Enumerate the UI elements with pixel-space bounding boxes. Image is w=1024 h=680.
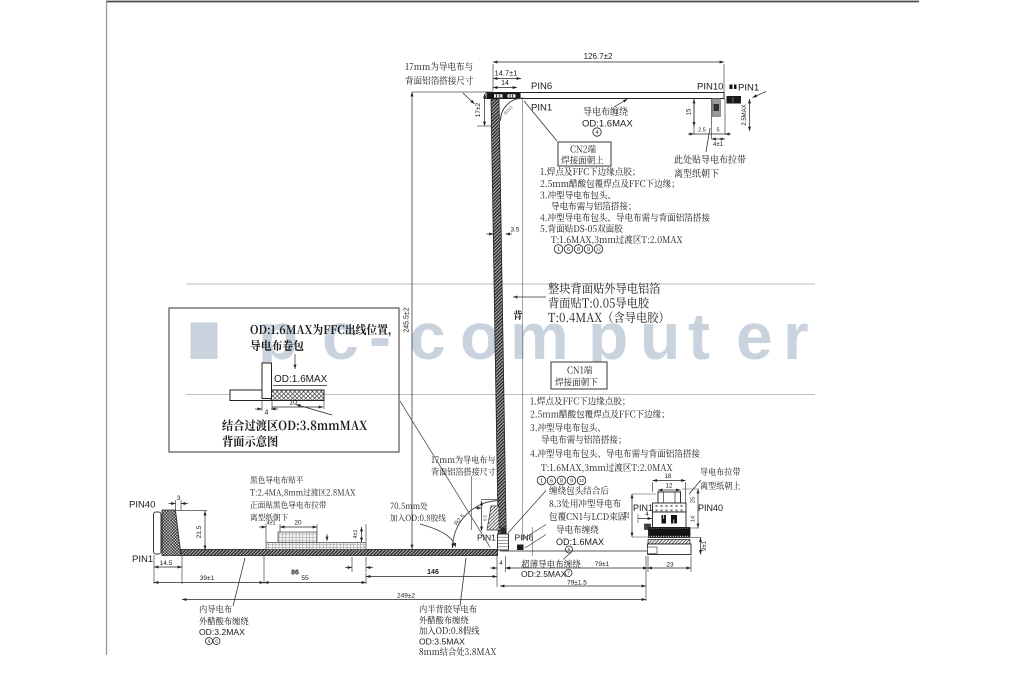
svg-text:25: 25 [691,497,697,503]
svg-text:4±1: 4±1 [713,142,724,148]
svg-text:6: 6 [550,478,553,484]
svg-text:6: 6 [567,247,570,253]
svg-text:12: 12 [579,478,585,483]
svg-text:PIN10: PIN10 [697,82,723,93]
svg-text:OD:1.6MAX: OD:1.6MAX [556,537,604,547]
svg-text:17±2: 17±2 [475,102,482,117]
svg-text:OD:2.5MAX: OD:2.5MAX [521,569,567,579]
svg-text:PIN1: PIN1 [738,83,759,94]
svg-text:e: e [736,299,773,373]
svg-text:4: 4 [265,410,269,417]
svg-text:c: c [322,299,359,373]
svg-text:9: 9 [570,478,573,484]
svg-text:0.5: 0.5 [483,514,488,521]
svg-text:PIN1: PIN1 [132,554,153,565]
svg-text:14: 14 [501,80,509,87]
svg-text:PIN1: PIN1 [633,503,653,513]
svg-text:5: 5 [716,128,719,134]
svg-text:PIN40: PIN40 [129,500,155,511]
svg-text:3.5: 3.5 [511,227,520,234]
svg-text:39±1: 39±1 [200,575,215,582]
svg-text:c: c [409,299,446,373]
svg-text:9: 9 [587,247,590,253]
svg-text:OD:1.6MAX: OD:1.6MAX [582,119,633,130]
svg-text:3: 3 [177,495,181,502]
svg-text:12: 12 [666,484,673,490]
svg-text:18: 18 [665,474,672,480]
svg-text:-: - [369,299,391,373]
svg-text:55: 55 [301,575,309,582]
svg-text:p: p [258,299,298,373]
svg-text:1: 1 [540,478,543,484]
svg-text:PIN6: PIN6 [531,81,552,92]
svg-text:PIN40: PIN40 [698,503,723,513]
svg-text:r: r [783,299,809,373]
svg-text:4±1: 4±1 [266,521,275,527]
svg-text:9±1: 9±1 [702,540,708,551]
svg-text:4±1: 4±1 [353,529,359,538]
svg-text:245.5±2: 245.5±2 [404,307,411,332]
svg-text:79±1.5: 79±1.5 [567,580,587,587]
svg-text:126.7±2: 126.7±2 [584,52,613,61]
svg-text:23: 23 [666,562,674,569]
svg-text:u: u [640,299,680,373]
svg-text:OD:3.5MAX: OD:3.5MAX [419,637,465,647]
svg-text:2.5: 2.5 [698,128,706,134]
svg-text:1: 1 [557,247,560,253]
svg-text:79±1: 79±1 [595,561,610,568]
svg-text:15: 15 [687,108,693,115]
svg-text:86: 86 [291,570,299,577]
svg-text:249±2: 249±2 [397,593,415,600]
svg-text:146: 146 [427,569,439,576]
svg-text:PIN1: PIN1 [477,533,496,543]
svg-text:4: 4 [595,130,598,136]
svg-text:14.7±1: 14.7±1 [495,69,518,78]
svg-text:10: 10 [289,400,297,407]
svg-text:20: 20 [294,520,302,527]
svg-text:t: t [688,299,710,373]
svg-text:12: 12 [596,247,602,252]
svg-text:OD:1.6MAX: OD:1.6MAX [274,374,328,385]
svg-text:8: 8 [577,247,580,253]
svg-text:PIN1: PIN1 [531,103,552,114]
svg-text:2.5MAX: 2.5MAX [742,104,748,125]
svg-text:21.5: 21.5 [196,525,203,538]
svg-text:14: 14 [691,516,697,522]
svg-text:22: 22 [625,511,631,518]
svg-text:8: 8 [560,478,563,484]
svg-text:OD:3.2MAX: OD:3.2MAX [199,627,245,637]
svg-text:14.5: 14.5 [160,560,173,567]
